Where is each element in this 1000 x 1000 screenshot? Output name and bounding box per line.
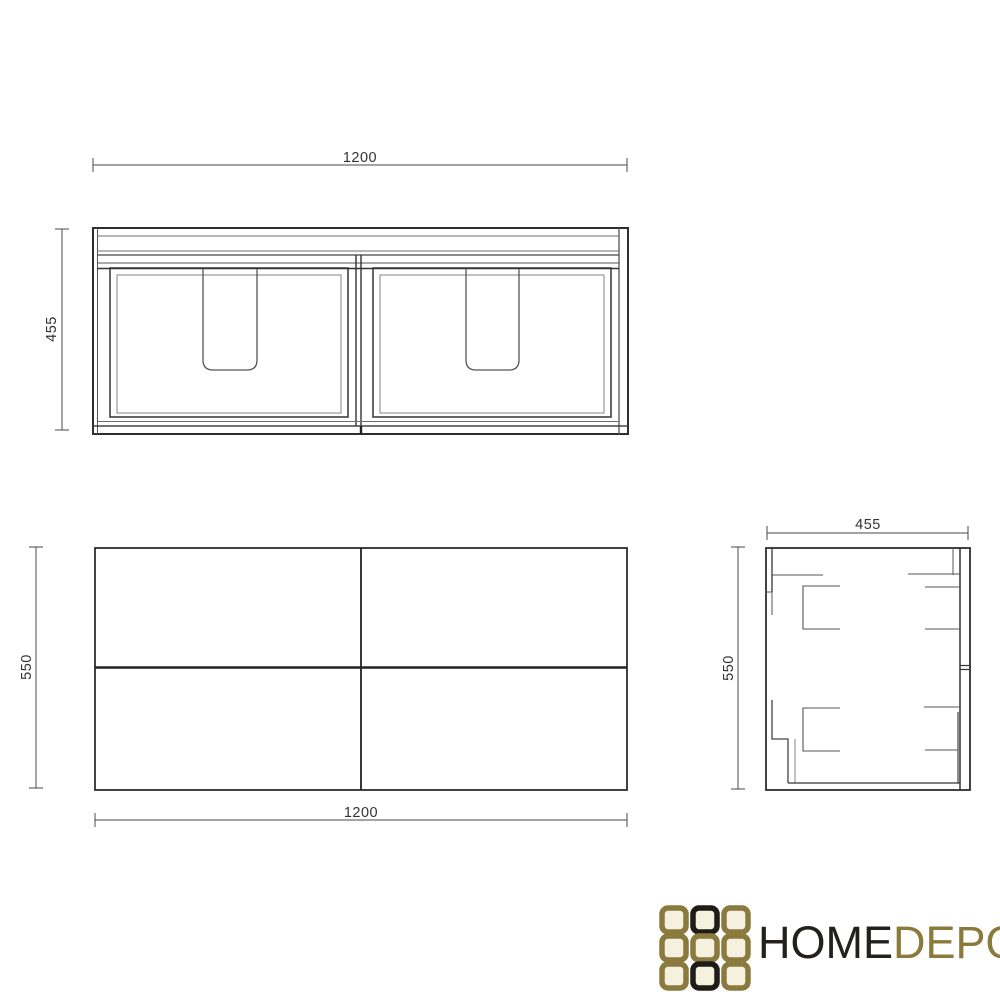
- cabinet-drawing: 1200 455: [0, 0, 1000, 1000]
- logo-square: [662, 936, 686, 960]
- logo-square: [693, 936, 717, 960]
- logo-square: [662, 964, 686, 988]
- logo-square: [693, 908, 717, 932]
- technical-drawing-page: 1200 455: [0, 0, 1000, 1000]
- logo-word-home: HOME: [758, 917, 893, 968]
- plan-view-height-label: 550: [19, 654, 35, 680]
- logo-square: [724, 908, 748, 932]
- plan-view: 550 1200: [19, 547, 627, 827]
- logo-square: [693, 964, 717, 988]
- homedepo-logo: HOMEDEPO: [662, 908, 1000, 988]
- logo-square: [724, 964, 748, 988]
- logo-word-depo: DEPO: [893, 917, 1000, 968]
- logo-square: [724, 936, 748, 960]
- front-view: 1200 455: [44, 150, 628, 434]
- front-view-width-label: 1200: [343, 150, 377, 166]
- side-view: 455 550: [721, 517, 970, 790]
- side-view-outline: [766, 548, 970, 790]
- logo-wordmark: HOMEDEPO: [758, 917, 1000, 968]
- logo-square: [662, 908, 686, 932]
- side-view-width-label: 455: [855, 517, 881, 533]
- front-view-height-label: 455: [44, 316, 60, 342]
- side-view-height-label: 550: [721, 655, 737, 681]
- plan-view-width-label: 1200: [344, 805, 378, 821]
- logo-grid-icon: [662, 908, 748, 988]
